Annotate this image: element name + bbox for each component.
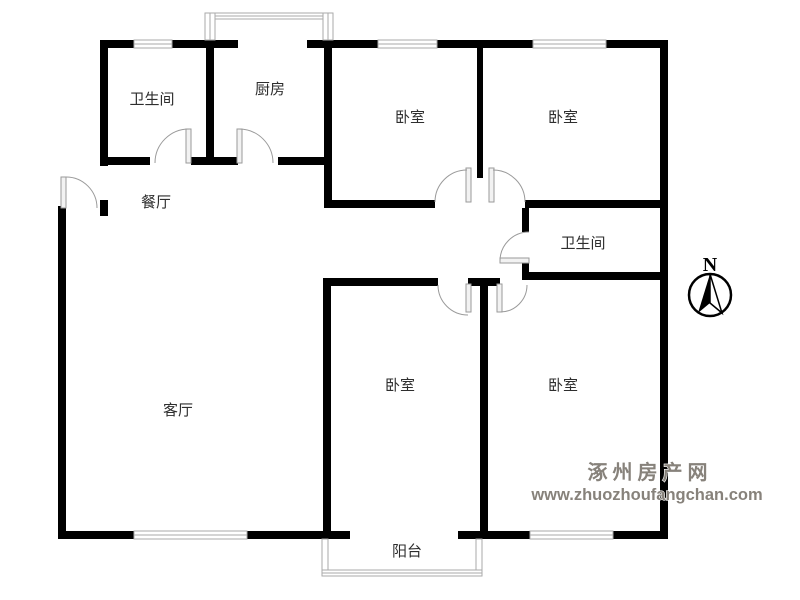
wall-bedroom-bm-top xyxy=(323,278,438,286)
door-bathroom1 xyxy=(155,129,191,163)
compass-needle-dark xyxy=(698,274,710,313)
door-entrance xyxy=(61,177,97,208)
wall-bottom-1 xyxy=(58,531,134,539)
wall-top-bedrooms-divider xyxy=(477,40,483,178)
wall-bath2-bottom xyxy=(522,272,660,280)
room-label-balcony: 阳台 xyxy=(392,543,422,560)
door-bedroom-top-right xyxy=(489,168,525,202)
wall-bathroom1-left xyxy=(100,40,108,166)
wall-bedroom-bm-left xyxy=(323,278,331,539)
room-label-living-room: 客厅 xyxy=(163,402,193,419)
room-label-dining-room: 餐厅 xyxy=(141,194,171,211)
compass-n-label: N xyxy=(703,254,718,276)
wall-bath2-left-top xyxy=(522,208,529,232)
windows xyxy=(134,40,613,539)
door-bedroom-bottom-middle xyxy=(438,284,471,315)
room-label-bedroom-bottom-middle: 卧室 xyxy=(385,377,415,394)
wall-bath1-kitchen-bottom-mid xyxy=(191,157,238,165)
watermark-site-name: 涿州房产网 xyxy=(588,460,713,484)
wall-bath1-kitchen-divider xyxy=(206,40,214,165)
wall-top-5 xyxy=(606,40,668,48)
window-bedroom-top-right xyxy=(533,40,606,48)
watermark: 涿州房产网 www.zhuozhoufangchan.com xyxy=(530,460,762,504)
watermark-site-url: www.zhuozhoufangchan.com xyxy=(530,486,762,504)
wall-bath1-bottom xyxy=(100,157,150,165)
window-bathroom1 xyxy=(134,40,172,48)
floor-plan: 卫生间 厨房 卧室 卧室 餐厅 卫生间 客厅 卧室 卧室 阳台 N 涿州房产网 … xyxy=(0,0,800,600)
wall-top-4 xyxy=(437,40,533,48)
wall-kitchen-right xyxy=(324,40,332,208)
window-bedroom-top-middle xyxy=(378,40,437,48)
wall-living-left xyxy=(58,206,66,539)
doors xyxy=(61,129,529,315)
window-living-room xyxy=(134,531,247,539)
door-bathroom2 xyxy=(500,232,529,263)
door-kitchen xyxy=(237,129,273,163)
door-bedroom-top-middle xyxy=(435,168,471,202)
door-bedroom-bottom-right xyxy=(497,284,527,312)
wall-top-2 xyxy=(172,40,238,48)
room-label-bedroom-bottom-right: 卧室 xyxy=(548,377,578,394)
compass-needle-light xyxy=(710,274,722,313)
wall-top-3 xyxy=(307,40,378,48)
room-label-kitchen: 厨房 xyxy=(255,81,285,98)
room-label-bedroom-top-right: 卧室 xyxy=(548,109,578,126)
room-label-bathroom-middle-right: 卫生间 xyxy=(560,235,605,252)
wall-bottom-4 xyxy=(613,531,668,539)
compass: N xyxy=(689,254,731,316)
room-label-bedroom-top-middle: 卧室 xyxy=(395,109,425,126)
floor-plan-canvas: 卫生间 厨房 卧室 卧室 餐厅 卫生间 客厅 卧室 卧室 阳台 N 涿州房产网 … xyxy=(0,0,800,600)
room-label-bathroom-top-left: 卫生间 xyxy=(129,91,174,108)
wall-kitchen-bottom xyxy=(278,157,332,165)
wall-bottom-2 xyxy=(247,531,350,539)
window-bedroom-bottom-right xyxy=(530,531,613,539)
wall-bedroom-tr-bottom xyxy=(525,200,660,208)
bay-window-kitchen xyxy=(205,13,333,40)
wall-bottom-bedrooms-divider xyxy=(480,278,488,539)
wall-bedroom-tm-bottom xyxy=(324,200,435,208)
wall-entry-jamb xyxy=(100,200,108,216)
wall-bottom-3 xyxy=(458,531,530,539)
